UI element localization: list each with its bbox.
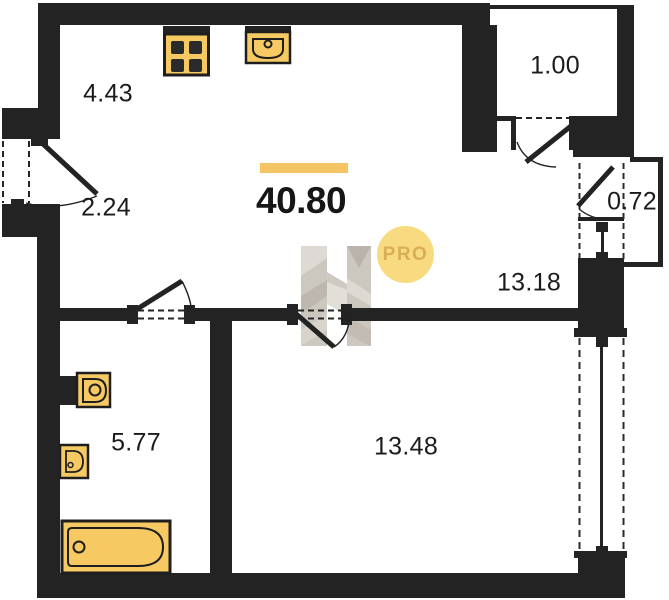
floor-plan: PRO 40.80 4.43 2.24 1.00 0.72 13.18 5.77… bbox=[0, 0, 669, 600]
bathroom-door bbox=[134, 281, 191, 319]
bedroom-window bbox=[580, 337, 624, 556]
room-label-kitchen-zone: 4.43 bbox=[83, 80, 133, 109]
washbasin-icon bbox=[60, 445, 88, 478]
wardrobe-door bbox=[516, 118, 571, 167]
stove-icon bbox=[163, 26, 210, 75]
toilet-icon bbox=[60, 373, 110, 407]
pro-watermark-badge: PRO bbox=[377, 226, 434, 283]
room-label-bedroom: 13.48 bbox=[374, 433, 438, 462]
kitchen-sink-icon bbox=[245, 26, 291, 63]
total-area-accent-bar bbox=[260, 163, 348, 173]
room-label-hallway-zone: 2.24 bbox=[81, 194, 131, 223]
pro-watermark-label: PRO bbox=[383, 244, 429, 266]
h-logo-watermark bbox=[301, 246, 371, 346]
room-label-vestibule: 0.72 bbox=[607, 188, 657, 217]
bathtub-icon bbox=[62, 521, 170, 573]
room-label-bathroom: 5.77 bbox=[111, 429, 161, 458]
room-label-wardrobe: 1.00 bbox=[530, 52, 580, 81]
room-label-living-kitchen: 13.18 bbox=[497, 269, 561, 298]
total-area-label: 40.80 bbox=[256, 180, 346, 222]
